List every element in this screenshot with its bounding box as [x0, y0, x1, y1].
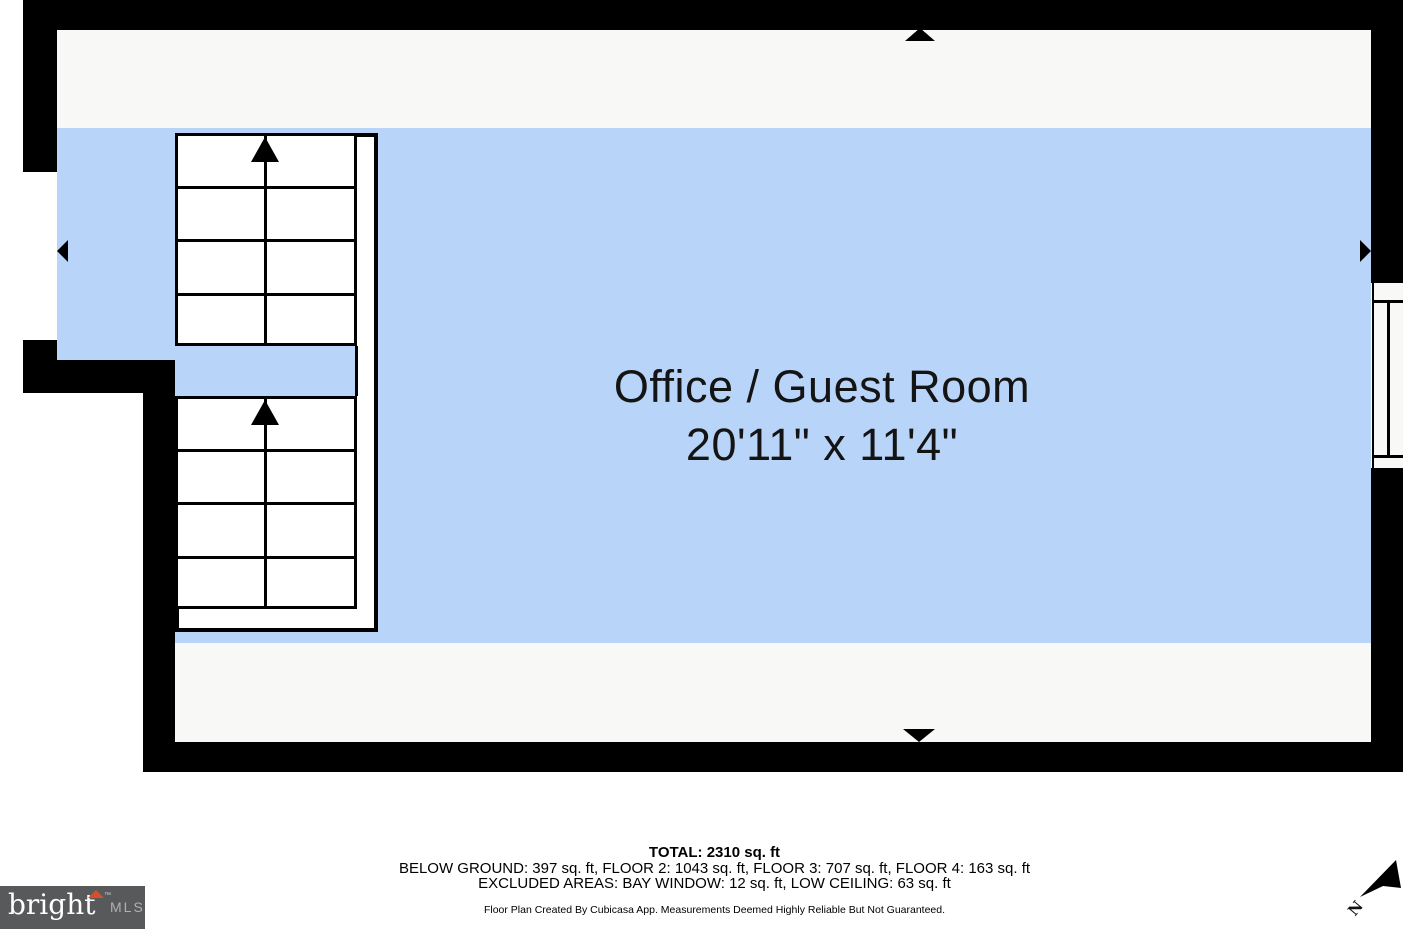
- wall-left-upper: [23, 0, 57, 172]
- north-compass-icon: N: [1346, 856, 1403, 924]
- wall-top: [23, 0, 1403, 30]
- wall-right-upper: [1371, 0, 1403, 283]
- wall-marker-down-icon: [903, 729, 935, 742]
- room-fill-left: [57, 128, 175, 360]
- wall-bottom: [143, 742, 1403, 772]
- wall-marker-right-icon: [1360, 240, 1371, 262]
- excluded-areas: EXCLUDED AREAS: BAY WINDOW: 12 sq. ft, L…: [13, 876, 1403, 891]
- room-label: Office / Guest Room 20'11" x 11'4": [400, 358, 1244, 474]
- stair-flight-lower: [175, 396, 357, 609]
- stair-up-arrow-icon: [251, 137, 279, 162]
- logo-flame-icon: [88, 890, 104, 898]
- compass-north-label: N: [1346, 897, 1367, 919]
- logo-brand-text: bright: [8, 888, 95, 921]
- stair-landing: [175, 346, 358, 396]
- stair-flight-upper: [175, 133, 357, 346]
- total-area: TOTAL: 2310 sq. ft: [13, 845, 1403, 860]
- wall-marker-left-icon: [57, 240, 68, 262]
- logo-mls-text: MLS: [110, 899, 145, 915]
- window-right: [1372, 283, 1403, 468]
- room-dimensions: 20'11" x 11'4": [400, 416, 1244, 474]
- wall-vertical-left: [143, 360, 175, 772]
- compass-arrow: [1360, 860, 1401, 897]
- stair-direction-stem: [264, 399, 267, 606]
- floor-plan: Office / Guest Room 20'11" x 11'4" TOTAL…: [0, 0, 1403, 929]
- floor-area-bottom: [175, 643, 1371, 742]
- bright-mls-logo: bright ™ MLS: [0, 886, 145, 929]
- room-name: Office / Guest Room: [400, 358, 1244, 416]
- floor-area-top: [57, 30, 1371, 128]
- logo-trademark: ™: [104, 892, 111, 899]
- window-frame-bottom: [1374, 455, 1403, 458]
- window-pane-divider: [1387, 303, 1390, 455]
- stair-up-arrow-icon: [251, 400, 279, 425]
- disclaimer-text: Floor Plan Created By Cubicasa App. Meas…: [13, 904, 1403, 916]
- area-summary: TOTAL: 2310 sq. ft BELOW GROUND: 397 sq.…: [13, 845, 1403, 916]
- floor-areas: BELOW GROUND: 397 sq. ft, FLOOR 2: 1043 …: [13, 861, 1403, 876]
- stair-direction-stem: [264, 136, 267, 343]
- wall-marker-up-icon: [905, 28, 935, 41]
- wall-right-lower: [1371, 468, 1403, 742]
